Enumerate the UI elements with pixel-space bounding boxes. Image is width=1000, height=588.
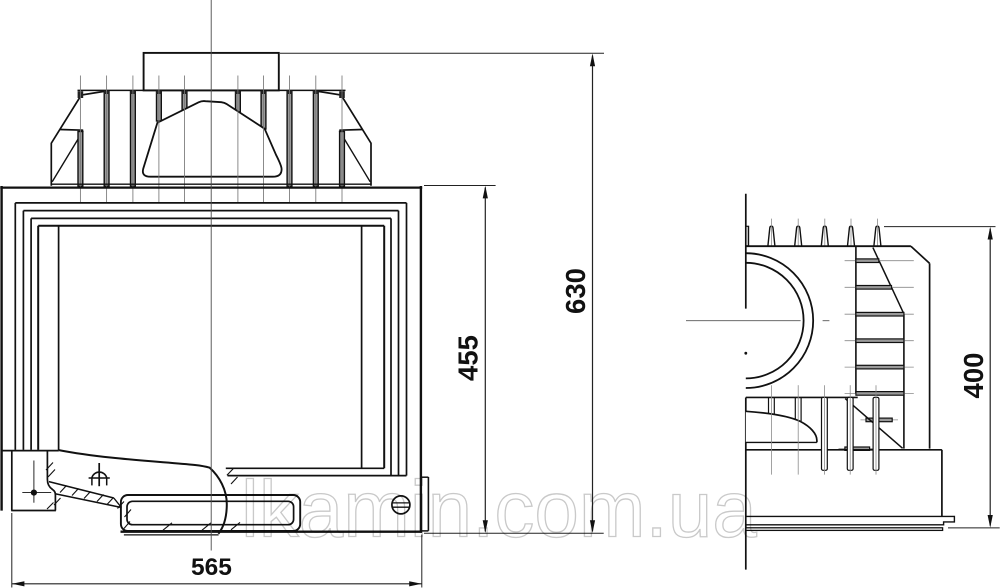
svg-text:400: 400 [958,353,989,399]
svg-text:lkamin.com.ua: lkamin.com.ua [241,465,757,554]
svg-text:455: 455 [453,335,484,381]
svg-text:630: 630 [560,268,591,314]
svg-text:565: 565 [191,554,232,581]
